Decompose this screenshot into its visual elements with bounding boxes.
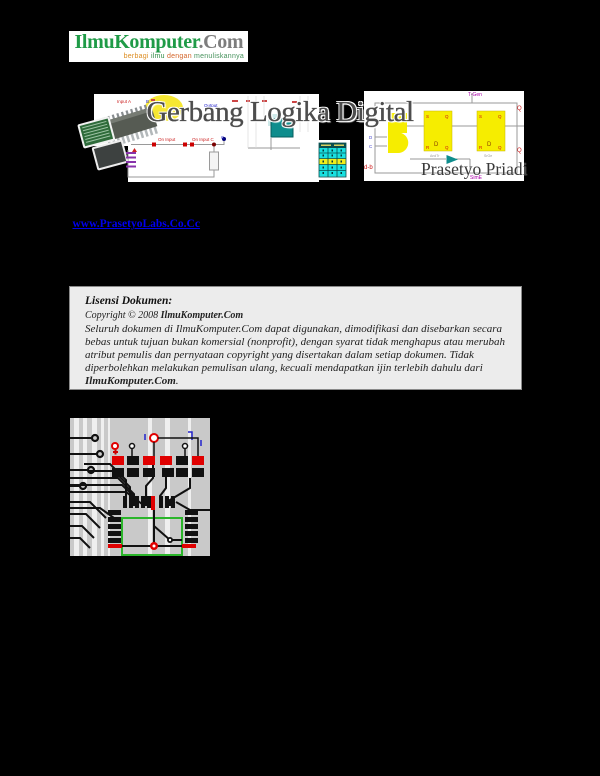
svg-text:D: D [369,135,373,140]
svg-text:SrGe: SrGe [484,154,492,158]
svg-text:Input A: Input A [117,99,131,104]
svg-text:S: S [479,114,482,119]
svg-text:Q: Q [445,145,449,150]
svg-text:D: D [487,142,492,148]
svg-text:Q: Q [498,145,502,150]
svg-text:On Input: On Input [158,137,176,142]
svg-text:AndTr: AndTr [430,154,440,158]
svg-text:D: D [434,142,439,148]
svg-text:d-b: d-b [364,165,373,171]
svg-text:Q: Q [498,114,502,119]
svg-text:T-Gen: T-Gen [468,92,482,98]
svg-text:Q: Q [517,106,522,112]
svg-text:Q: Q [517,148,522,154]
svg-text:On Input C: On Input C [192,137,215,142]
svg-text:C: C [369,144,373,149]
